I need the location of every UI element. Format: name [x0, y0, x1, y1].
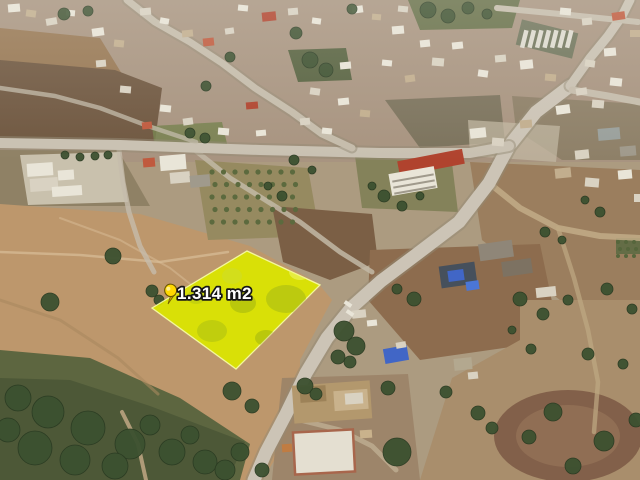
building: [465, 280, 479, 291]
olive-tree: [634, 247, 638, 251]
tree: [231, 443, 249, 461]
tree: [627, 304, 637, 314]
olive-tree: [232, 219, 237, 224]
building: [282, 444, 293, 453]
tree: [544, 403, 562, 421]
olive-tree: [290, 169, 295, 174]
olive-tree: [224, 182, 229, 187]
tree: [378, 190, 390, 202]
parcel-texture-blob: [197, 320, 227, 342]
olive-tree: [224, 207, 229, 212]
olive-tree: [258, 182, 263, 187]
olive-tree: [209, 194, 214, 199]
tree: [629, 413, 640, 427]
tree: [416, 192, 424, 200]
tree: [102, 453, 128, 479]
haze: [0, 0, 640, 160]
olive-tree: [235, 207, 240, 212]
tree: [595, 207, 605, 217]
olive-tree: [270, 207, 275, 212]
tree: [601, 283, 613, 295]
building: [170, 171, 191, 184]
olive-tree: [278, 219, 283, 224]
olive-tree: [626, 247, 630, 251]
tree: [264, 182, 272, 190]
tree: [193, 450, 217, 474]
building: [58, 169, 75, 180]
olive-tree: [267, 194, 272, 199]
atmosphere-overlay: [0, 0, 640, 160]
building: [634, 194, 640, 202]
olive-tree: [632, 240, 636, 244]
olive-tree: [258, 207, 263, 212]
olive-tree: [281, 207, 286, 212]
olive-tree: [209, 169, 214, 174]
olive-tree: [624, 254, 628, 258]
tree: [181, 426, 199, 444]
tree: [60, 445, 90, 475]
tree: [140, 415, 160, 435]
tree: [368, 182, 376, 190]
tree: [347, 337, 365, 355]
tree: [537, 308, 549, 320]
tree: [383, 438, 411, 466]
building: [367, 319, 378, 326]
olive-tree: [255, 219, 260, 224]
tree: [407, 292, 421, 306]
tree: [513, 292, 527, 306]
olive-tree: [267, 219, 272, 224]
tree: [594, 431, 614, 451]
olive-tree: [209, 219, 214, 224]
olive-tree: [632, 254, 636, 258]
building: [190, 174, 211, 188]
tree: [565, 458, 581, 474]
olive-tree: [290, 219, 295, 224]
olive-tree: [212, 207, 217, 212]
tree: [71, 411, 105, 445]
building: [447, 269, 464, 282]
tree: [581, 196, 589, 204]
olive-tree: [255, 194, 260, 199]
olive-tree: [244, 169, 249, 174]
building: [618, 169, 633, 179]
olive-tree: [247, 182, 252, 187]
tree: [471, 406, 485, 420]
olive-tree: [255, 169, 260, 174]
olive-tree: [244, 194, 249, 199]
building: [585, 177, 600, 187]
olive-tree: [221, 219, 226, 224]
olive-tree: [624, 240, 628, 244]
olive-tree: [232, 169, 237, 174]
olive-tree: [293, 182, 298, 187]
tree: [245, 399, 259, 413]
olive-tree: [616, 254, 620, 258]
tree: [331, 350, 345, 364]
building: [293, 429, 355, 474]
olive-tree: [290, 194, 295, 199]
tree: [308, 166, 316, 174]
olive-tree: [235, 182, 240, 187]
tree: [486, 422, 498, 434]
tree: [255, 463, 269, 477]
building: [345, 392, 364, 404]
tree: [41, 293, 59, 311]
tree: [540, 227, 550, 237]
tree: [526, 344, 536, 354]
building: [27, 162, 54, 177]
parcel-texture-blob: [222, 268, 242, 284]
tree: [381, 381, 395, 395]
tree: [344, 356, 356, 368]
tree: [334, 321, 354, 341]
building: [453, 357, 472, 371]
tree: [223, 382, 241, 400]
tree: [558, 236, 566, 244]
tree: [508, 326, 516, 334]
olive-tree: [618, 247, 622, 251]
building: [468, 371, 479, 379]
tree: [618, 359, 628, 369]
tree: [392, 284, 402, 294]
olive-tree: [278, 169, 283, 174]
aerial-photo: 1.314 m2: [0, 0, 640, 480]
olive-tree: [221, 169, 226, 174]
olive-tree: [281, 182, 286, 187]
olive-tree: [212, 182, 217, 187]
tree: [440, 386, 452, 398]
building: [555, 167, 572, 179]
tree: [563, 295, 573, 305]
olive-tree: [221, 194, 226, 199]
olive-tree: [616, 240, 620, 244]
tree: [582, 348, 594, 360]
tree: [18, 431, 52, 465]
tree: [310, 388, 322, 400]
tree: [0, 418, 20, 442]
satellite-listing-photo: 1.314 m2: [0, 0, 640, 480]
tree: [522, 430, 536, 444]
olive-tree: [244, 219, 249, 224]
olive-tree: [267, 169, 272, 174]
olive-tree: [247, 207, 252, 212]
building: [360, 430, 373, 439]
building: [536, 286, 557, 298]
tree: [277, 191, 287, 201]
tree: [5, 385, 31, 411]
olive-tree: [293, 207, 298, 212]
tree: [32, 396, 64, 428]
olive-tree: [232, 194, 237, 199]
tree: [105, 248, 121, 264]
tree: [215, 460, 235, 480]
parcel-area-label: 1.314 m2: [177, 284, 252, 303]
tree: [397, 201, 407, 211]
tree: [159, 439, 185, 465]
building: [52, 185, 83, 197]
tree: [146, 285, 158, 297]
